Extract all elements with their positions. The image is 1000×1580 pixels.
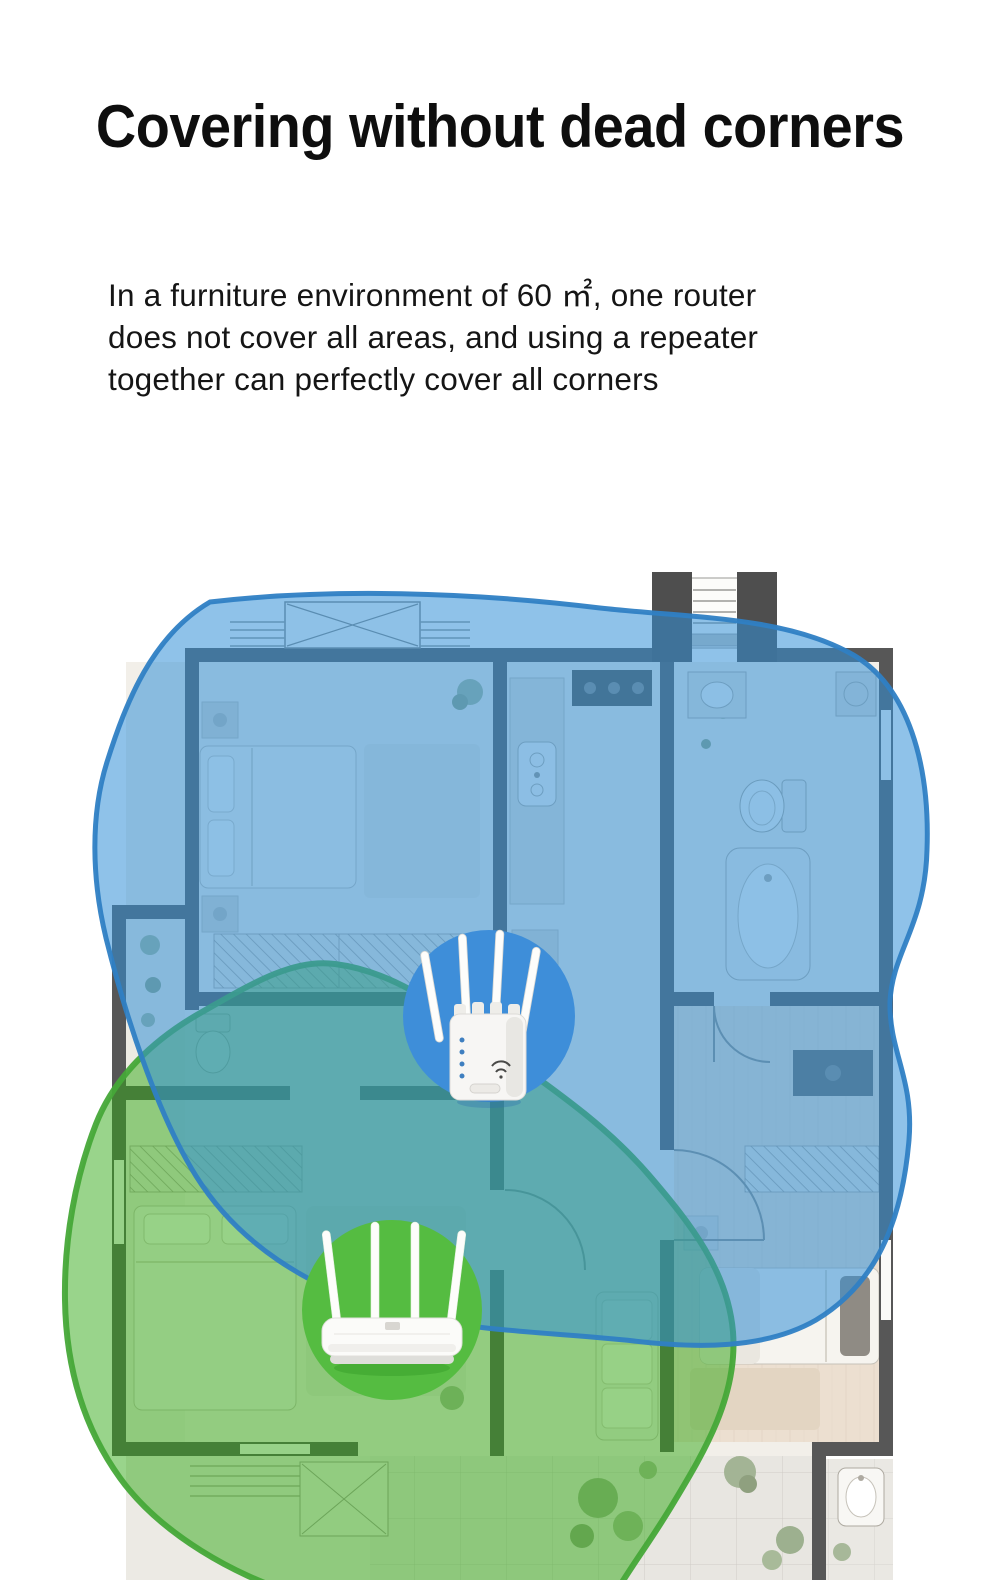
description-line: together can perfectly cover all corners: [108, 358, 908, 400]
coverage-diagram: [0, 0, 1000, 1580]
router-badge: [302, 1220, 482, 1400]
description-line: In a furniture environment of 60 ㎡, one …: [108, 274, 908, 316]
page: Covering without dead corners In a furni…: [0, 0, 1000, 1580]
page-title: Covering without dead corners: [35, 92, 965, 161]
description-line: does not cover all areas, and using a re…: [108, 316, 908, 358]
description: In a furniture environment of 60 ㎡, one …: [108, 274, 908, 400]
